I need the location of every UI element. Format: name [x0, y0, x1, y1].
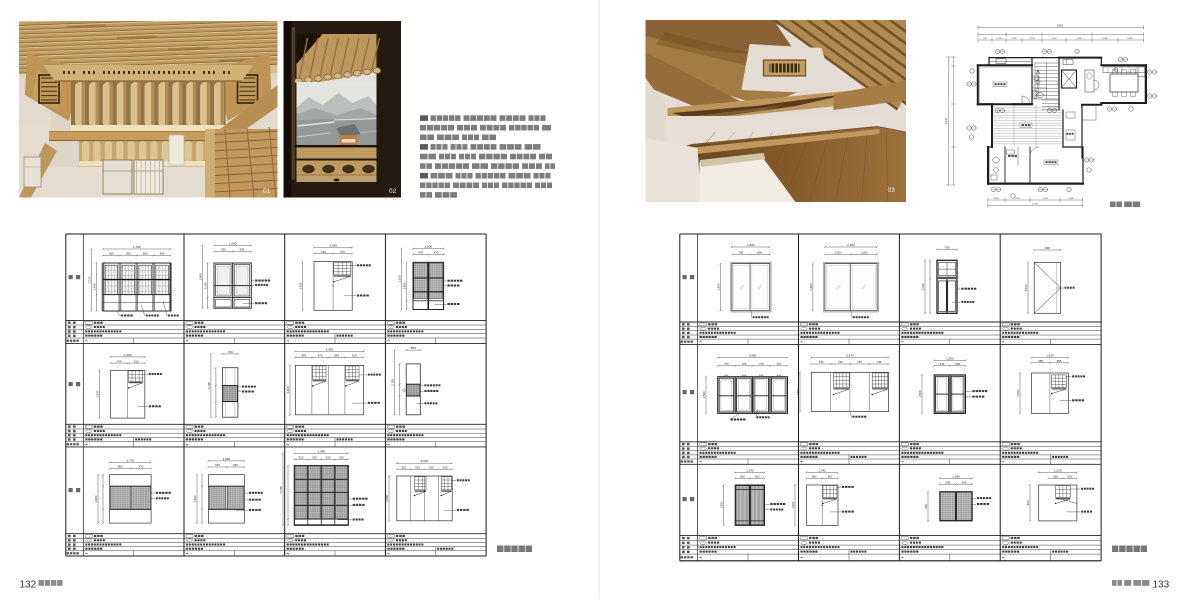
svg-text:2,400: 2,400: [1051, 38, 1057, 40]
svg-text:132: 132: [20, 580, 37, 591]
svg-text:2,600: 2,600: [1127, 38, 1133, 40]
svg-text:605: 605: [301, 354, 306, 358]
svg-text:500: 500: [126, 252, 131, 256]
svg-text:1,800: 1,800: [796, 388, 800, 395]
svg-text:945: 945: [215, 463, 220, 467]
svg-text:2,100: 2,100: [1014, 198, 1020, 200]
svg-text:2,150: 2,150: [391, 379, 395, 386]
svg-text:1,790: 1,790: [133, 245, 141, 249]
svg-text:1,800: 1,800: [716, 283, 720, 290]
svg-text:1,890: 1,890: [403, 282, 407, 289]
svg-text:1,960: 1,960: [193, 495, 197, 502]
svg-text:502: 502: [740, 475, 745, 479]
svg-text:1,290: 1,290: [952, 474, 960, 478]
svg-text:9,860: 9,860: [1057, 23, 1064, 27]
svg-text:890: 890: [118, 465, 123, 469]
svg-text:1,200: 1,200: [861, 251, 868, 255]
svg-text:02: 02: [389, 188, 397, 195]
svg-text:610: 610: [352, 354, 357, 358]
svg-text:2,970: 2,970: [846, 354, 854, 358]
svg-text:1,900: 1,900: [720, 501, 724, 508]
svg-text:515: 515: [429, 465, 434, 469]
svg-text:800: 800: [757, 251, 762, 255]
svg-text:545: 545: [334, 354, 339, 358]
svg-text:530: 530: [221, 248, 226, 252]
svg-text:510: 510: [299, 456, 304, 460]
svg-text:900: 900: [924, 504, 928, 509]
svg-text:500: 500: [143, 252, 148, 256]
svg-text:1,290: 1,290: [946, 356, 954, 360]
svg-text:1,500: 1,500: [702, 391, 706, 398]
svg-text:5,700: 5,700: [1032, 204, 1038, 206]
svg-text:900: 900: [1026, 500, 1030, 505]
svg-text:1,245: 1,245: [818, 469, 826, 473]
svg-text:2,400: 2,400: [847, 243, 855, 247]
svg-text:1,800: 1,800: [385, 494, 389, 501]
svg-text:510: 510: [339, 456, 344, 460]
svg-text:2,430: 2,430: [326, 347, 334, 351]
svg-text:655: 655: [1038, 359, 1043, 363]
svg-text:1,500: 1,500: [918, 390, 922, 397]
svg-text:502: 502: [812, 475, 817, 479]
svg-text:1,240: 1,240: [329, 243, 337, 247]
svg-text:770: 770: [776, 362, 781, 366]
svg-text:2,100: 2,100: [1029, 38, 1035, 40]
svg-text:770: 770: [742, 362, 747, 366]
svg-text:515: 515: [1067, 475, 1072, 479]
svg-text:2,600: 2,600: [1076, 38, 1082, 40]
svg-text:870: 870: [139, 465, 144, 469]
svg-text:01: 01: [263, 188, 271, 195]
svg-text:2,350: 2,350: [279, 485, 283, 492]
svg-text:1,500: 1,500: [993, 198, 999, 200]
svg-text:1,500: 1,500: [996, 38, 1002, 40]
svg-text:515: 515: [401, 465, 406, 469]
svg-text:1,800: 1,800: [1016, 389, 1020, 396]
svg-text:740: 740: [819, 360, 824, 364]
svg-text:770: 770: [759, 362, 764, 366]
svg-text:2,230: 2,230: [921, 283, 925, 290]
svg-text:570: 570: [321, 250, 326, 254]
svg-text:700: 700: [944, 245, 949, 249]
svg-text:1,245: 1,245: [746, 469, 754, 473]
svg-text:2,060: 2,060: [421, 459, 429, 463]
svg-text:530: 530: [312, 456, 317, 460]
svg-text:945: 945: [233, 463, 238, 467]
svg-text:1,800: 1,800: [809, 283, 813, 290]
svg-text:1,200: 1,200: [835, 251, 842, 255]
svg-text:2,100: 2,100: [207, 382, 211, 389]
svg-text:1,500: 1,500: [95, 390, 99, 397]
svg-text:1,500: 1,500: [1054, 469, 1062, 473]
svg-text:133: 133: [1153, 580, 1170, 591]
svg-text:645: 645: [955, 362, 960, 366]
svg-text:1,800: 1,800: [1068, 198, 1074, 200]
svg-text:515: 515: [1053, 475, 1058, 479]
svg-text:670: 670: [340, 250, 345, 254]
svg-text:3,080: 3,080: [749, 354, 757, 358]
svg-text:470: 470: [434, 251, 439, 255]
svg-text:860: 860: [411, 346, 416, 350]
svg-text:530: 530: [240, 248, 245, 252]
svg-text:600: 600: [160, 252, 165, 256]
svg-text:2,100: 2,100: [1024, 284, 1028, 291]
svg-text:645: 645: [962, 480, 967, 484]
svg-text:645: 645: [940, 362, 945, 366]
svg-text:745: 745: [877, 360, 882, 364]
svg-text:470: 470: [418, 251, 423, 255]
svg-text:1,090: 1,090: [124, 353, 132, 357]
svg-text:03: 03: [888, 187, 896, 194]
svg-text:1,500: 1,500: [223, 457, 231, 461]
svg-text:745: 745: [838, 360, 843, 364]
svg-text:1,510: 1,510: [1046, 354, 1054, 358]
svg-text:700: 700: [228, 350, 233, 354]
svg-text:2,130: 2,130: [88, 276, 92, 283]
svg-text:515: 515: [415, 465, 420, 469]
svg-text:1,000: 1,000: [425, 245, 433, 249]
svg-text:645: 645: [946, 480, 951, 484]
svg-text:1,960: 1,960: [94, 495, 98, 502]
svg-text:475: 475: [117, 359, 122, 363]
svg-text:515: 515: [443, 465, 448, 469]
svg-text:2,600: 2,600: [1102, 38, 1108, 40]
svg-text:770: 770: [724, 362, 729, 366]
svg-text:1,060: 1,060: [229, 241, 237, 245]
svg-text:1,920: 1,920: [299, 282, 303, 289]
svg-text:1,770: 1,770: [127, 458, 135, 462]
svg-text:1,800: 1,800: [1011, 38, 1017, 40]
svg-text:740: 740: [857, 360, 862, 364]
svg-text:8,400: 8,400: [945, 117, 948, 124]
svg-text:600: 600: [109, 252, 114, 256]
svg-text:502: 502: [828, 475, 833, 479]
svg-text:1,900: 1,900: [199, 273, 203, 280]
svg-text:1,500: 1,500: [747, 243, 755, 247]
svg-text:530: 530: [326, 456, 331, 460]
svg-text:1,800: 1,800: [286, 386, 290, 393]
svg-text:610: 610: [134, 359, 139, 363]
svg-text:502: 502: [755, 475, 760, 479]
svg-text:2,080: 2,080: [318, 449, 326, 453]
svg-text:700: 700: [738, 251, 743, 255]
svg-text:2,100: 2,100: [398, 275, 402, 282]
svg-text:900: 900: [1045, 246, 1050, 250]
svg-text:1,500: 1,500: [204, 282, 208, 289]
svg-text:670: 670: [318, 354, 323, 358]
svg-text:655: 655: [1057, 359, 1062, 363]
svg-text:1,940: 1,940: [93, 283, 97, 290]
svg-text:2,400: 2,400: [1042, 198, 1048, 200]
svg-text:1,900: 1,900: [791, 501, 795, 508]
